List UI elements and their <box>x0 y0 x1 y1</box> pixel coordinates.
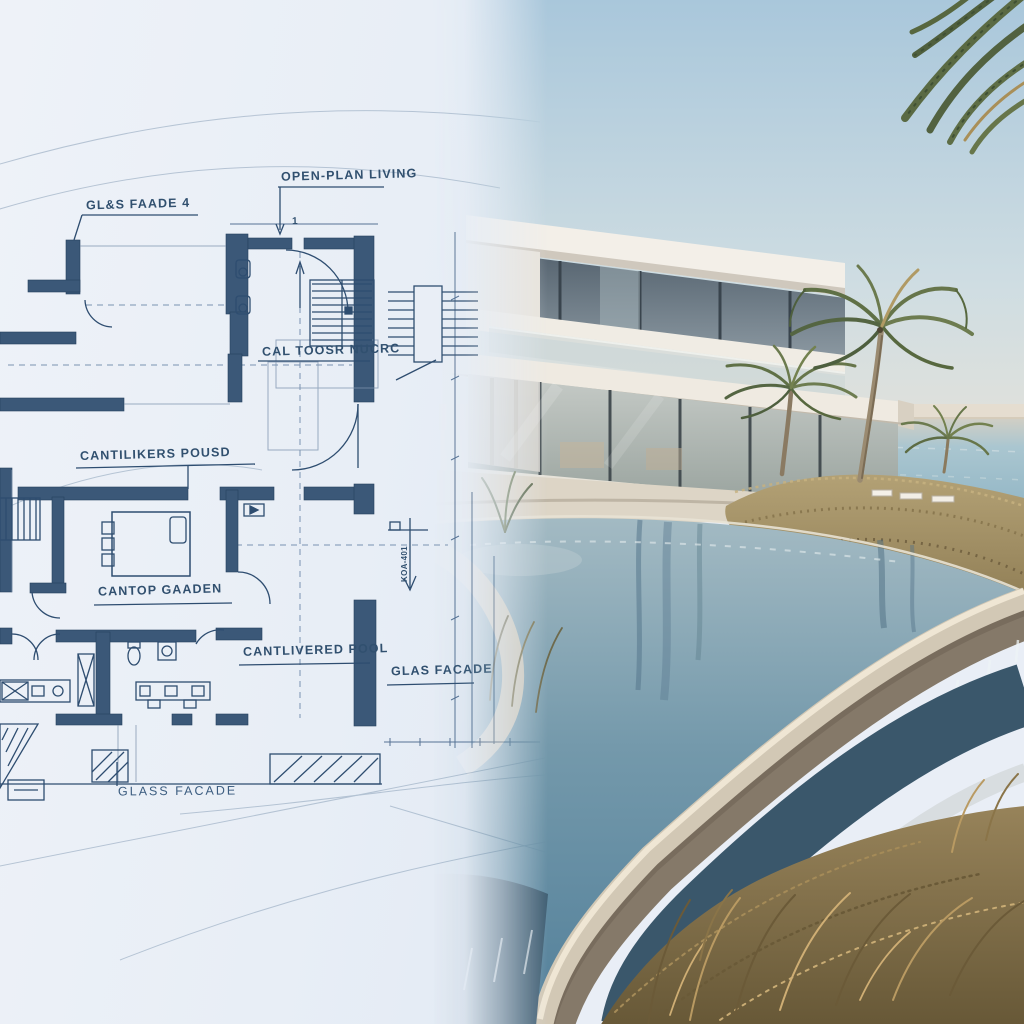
annotation-glass-facade-top: GL&S FAADE 4 <box>86 196 191 213</box>
blueprint-to-reality-image: GL&S FAADE 4 OPEN-PLAN LIVING CAL TOOSR … <box>0 0 1024 1024</box>
floor-plan-drawing <box>0 0 560 1024</box>
blueprint-panel: GL&S FAADE 4 OPEN-PLAN LIVING CAL TOOSR … <box>0 0 560 1024</box>
annotation-door-number: 1 <box>292 216 298 227</box>
annotation-glass-facade-bottom: GLASS FACADE <box>118 783 237 798</box>
annotation-detail-tag: KOA-401 <box>400 546 409 582</box>
annotation-glas-facade-mid: GLAS FACADE <box>391 662 493 679</box>
